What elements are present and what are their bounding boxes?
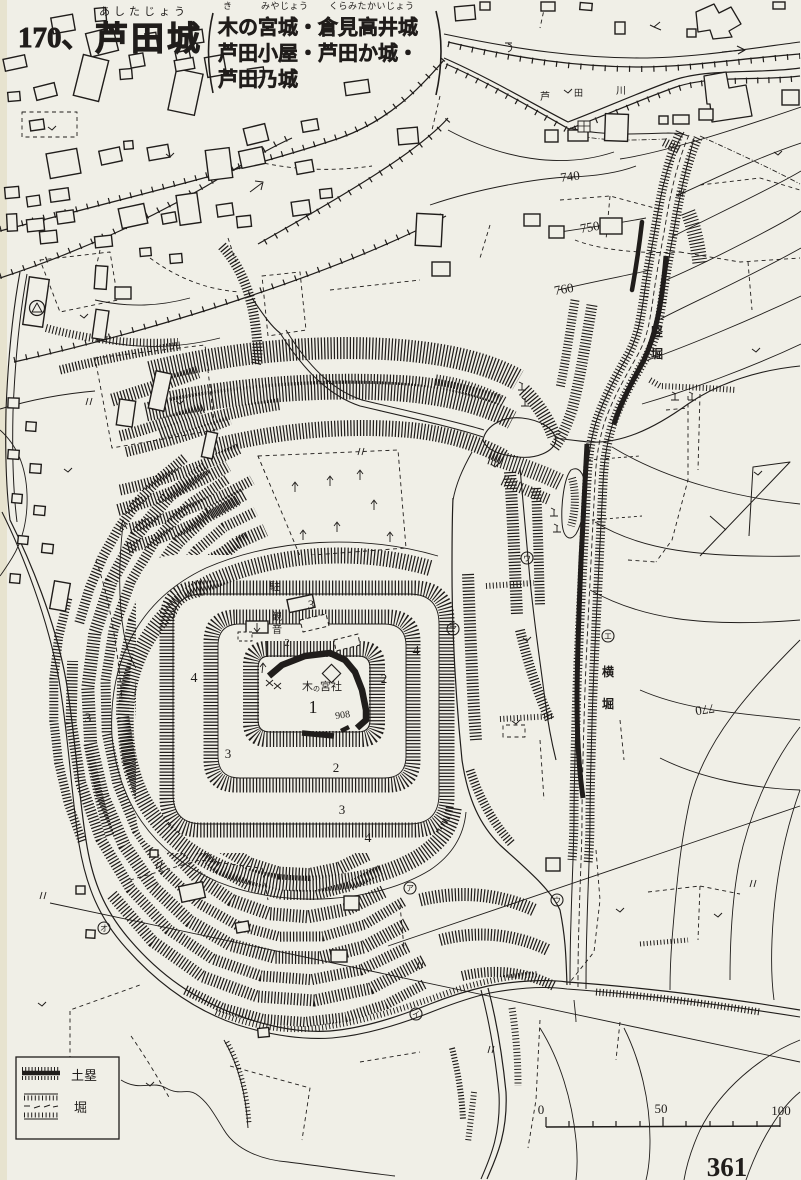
svg-text:あしたじょう: あしたじょう <box>99 5 189 18</box>
svg-text:2: 2 <box>333 760 340 775</box>
svg-text:908: 908 <box>334 709 350 722</box>
svg-text:き: き <box>223 1 232 11</box>
svg-text:50: 50 <box>655 1101 668 1116</box>
svg-text:770: 770 <box>694 701 715 719</box>
svg-text:ア: ア <box>406 884 414 893</box>
svg-text:3: 3 <box>308 597 315 612</box>
svg-text:ア: ア <box>449 625 457 634</box>
svg-text:4: 4 <box>413 644 420 659</box>
svg-text:イ: イ <box>412 1010 420 1019</box>
svg-text:横: 横 <box>602 664 615 679</box>
svg-text:1: 1 <box>309 697 318 717</box>
svg-text:田: 田 <box>574 88 583 98</box>
svg-text:4: 4 <box>191 671 198 686</box>
svg-text:170、: 170、 <box>18 22 91 54</box>
svg-text:3: 3 <box>225 746 232 761</box>
svg-text:木: 木 <box>302 680 313 693</box>
svg-text:堀: 堀 <box>74 1100 87 1115</box>
svg-text:3: 3 <box>339 802 346 817</box>
svg-text:100: 100 <box>771 1103 791 1118</box>
svg-text:4: 4 <box>365 831 372 846</box>
svg-text:宮社: 宮社 <box>320 679 342 693</box>
svg-text:の: の <box>313 685 320 693</box>
svg-text:駐: 駐 <box>270 579 281 593</box>
svg-text:堀: 堀 <box>602 696 614 711</box>
svg-text:音: 音 <box>272 623 282 636</box>
svg-text:芦田城: 芦田城 <box>95 21 203 58</box>
svg-text:オ: オ <box>100 924 108 933</box>
svg-text:川: 川 <box>616 86 626 97</box>
svg-text:ウ: ウ <box>553 896 561 905</box>
svg-text:観: 観 <box>272 610 282 623</box>
svg-text:堀: 堀 <box>651 346 663 361</box>
svg-text:竪: 竪 <box>651 325 664 339</box>
svg-text:土塁: 土塁 <box>71 1068 97 1083</box>
svg-text:361: 361 <box>707 1152 748 1180</box>
svg-text:芦田乃城: 芦田乃城 <box>218 67 298 91</box>
svg-text:3: 3 <box>85 710 92 725</box>
svg-text:芦: 芦 <box>540 91 550 103</box>
svg-text:芦田小屋・芦田か城・: 芦田小屋・芦田か城・ <box>218 41 418 65</box>
svg-text:2: 2 <box>381 671 388 686</box>
svg-text:2: 2 <box>284 637 290 649</box>
svg-text:ウ: ウ <box>523 554 531 563</box>
svg-text:740: 740 <box>559 167 580 185</box>
svg-text:0: 0 <box>538 1102 545 1117</box>
svg-text:木の宮城・倉見高井城: 木の宮城・倉見高井城 <box>217 15 418 39</box>
svg-text:くらみたかいじょう: くらみたかいじょう <box>329 1 415 11</box>
svg-text:エ: エ <box>604 632 612 641</box>
svg-text:みやじょう: みやじょう <box>261 1 309 11</box>
